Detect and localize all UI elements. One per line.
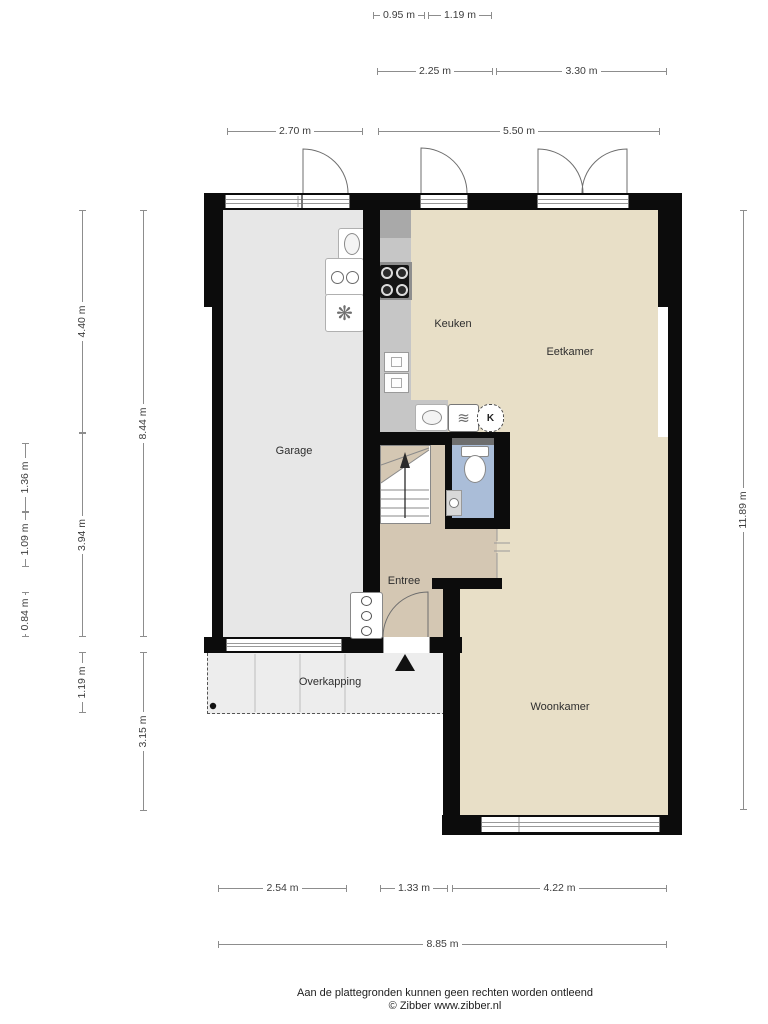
- wall-toilet-bottom: [445, 518, 510, 529]
- dimension-line-part: [601, 71, 666, 72]
- dimension-line-part: [79, 652, 86, 653]
- garage-top-window: [225, 195, 302, 208]
- toilet-sink-icon: [446, 490, 462, 516]
- dimension-line-part: [740, 809, 747, 810]
- dimension: 2.25 m: [377, 64, 493, 78]
- dimension-label: 1.33 m: [395, 881, 433, 895]
- toilet-bowl-icon: [464, 455, 486, 483]
- oven-icon: ≋: [448, 404, 479, 432]
- entree-label: Entree: [388, 575, 420, 587]
- wall-garage-kitchen: [363, 205, 380, 637]
- dimension-line-part: [79, 433, 86, 434]
- floorplan-page: ≋ K ❋: [0, 0, 768, 1024]
- dimension-label: 2.25 m: [416, 64, 454, 78]
- livingroom-window: [481, 817, 660, 832]
- meter-icon: [361, 611, 372, 621]
- dimension-line-part: [362, 128, 363, 135]
- dimension: 5.50 m: [378, 124, 660, 138]
- dimension: 8.44 m: [136, 210, 150, 637]
- dimension-line-part: [140, 810, 147, 811]
- burner-icon: [396, 284, 408, 296]
- dimension-line-part: [743, 532, 744, 809]
- dimension-line-part: [22, 443, 29, 444]
- dimension-label: 11.89 m: [736, 488, 750, 531]
- dimension: 2.70 m: [227, 124, 363, 138]
- kitchen-door-opening: [420, 195, 468, 208]
- dimension-line-part: [228, 131, 276, 132]
- dimension-line-part: [666, 68, 667, 75]
- dimension-line-part: [491, 12, 492, 19]
- dimension: 1.36 m: [18, 443, 32, 512]
- staircase: [380, 445, 431, 524]
- dimension-line-part: [79, 636, 86, 637]
- dimension-label: 8.44 m: [136, 404, 150, 442]
- dimension-line-part: [140, 652, 147, 653]
- dimension-label: 0.84 m: [18, 595, 32, 633]
- dimension-line-part: [666, 941, 667, 948]
- dimension-line-part: [666, 885, 667, 892]
- dimension: 3.15 m: [136, 652, 150, 811]
- dimension-line-part: [143, 751, 144, 810]
- washer-dryer-icon: [325, 258, 364, 296]
- dimension: 8.85 m: [218, 937, 667, 951]
- dimension-line-part: [424, 12, 425, 19]
- dimension-line-part: [82, 341, 83, 432]
- dimension-label: 1.09 m: [18, 520, 32, 558]
- dimension-line-part: [22, 566, 29, 567]
- dimension-line-part: [143, 211, 144, 404]
- dimension: 1.09 m: [18, 512, 32, 567]
- heatpump-fan-icon: ❋: [325, 294, 364, 332]
- dimension-line-part: [497, 71, 562, 72]
- wall-toilet-right: [494, 432, 510, 528]
- vestibule-floor: [373, 589, 445, 639]
- fridge-icon: [383, 351, 410, 394]
- dimension-line-part: [314, 131, 362, 132]
- dimension-label: 5.50 m: [500, 124, 538, 138]
- dimension-line-part: [25, 634, 26, 636]
- dimension-line-part: [25, 513, 26, 520]
- overkapping-label: Overkapping: [299, 676, 361, 688]
- toilet-shelf: [452, 438, 494, 445]
- dimension: 2.54 m: [218, 881, 347, 895]
- dimension-line-part: [140, 210, 147, 211]
- wall-left-lower: [212, 307, 223, 653]
- kitchen-counter: [380, 210, 411, 432]
- dimension-line-part: [453, 888, 540, 889]
- dimension-line-part: [538, 131, 659, 132]
- wall-livingroom-left: [443, 583, 460, 815]
- dimension-label: 3.94 m: [75, 516, 89, 554]
- dimension: 4.22 m: [452, 881, 667, 895]
- dimension-line-part: [79, 712, 86, 713]
- boiler-label: K: [487, 413, 494, 424]
- keuken-label: Keuken: [434, 318, 471, 330]
- dimension-line-part: [143, 653, 144, 712]
- woonkamer-label: Woonkamer: [530, 701, 589, 713]
- burner-icon: [396, 267, 408, 279]
- dimension-label: 8.85 m: [423, 937, 461, 951]
- dimension-label: 0.95 m: [380, 8, 418, 22]
- dimension-line-part: [25, 559, 26, 566]
- eetkamer-label: Eetkamer: [546, 346, 593, 358]
- boiler-icon: K: [477, 404, 504, 432]
- garage-bottom-window: [226, 639, 342, 651]
- garage-sink-icon: [338, 228, 366, 260]
- double-door-left-arc: [538, 149, 583, 193]
- dimension-line-part: [378, 71, 416, 72]
- footer: Aan de plattegronden kunnen geen rechten…: [61, 987, 768, 1013]
- garage-label: Garage: [276, 445, 313, 457]
- dimension-line-part: [82, 653, 83, 663]
- fan-glyph: ❋: [336, 301, 353, 326]
- dimension-line-part: [22, 592, 29, 593]
- dryer-drum-icon: [346, 271, 359, 284]
- dimension-label: 2.54 m: [263, 881, 301, 895]
- dimension-line-part: [25, 593, 26, 595]
- dimension-line-part: [82, 702, 83, 712]
- dimension: 1.19 m: [428, 8, 492, 22]
- dimension: 4.40 m: [75, 210, 89, 433]
- dimension-line-part: [143, 443, 144, 636]
- sink-basin: [344, 233, 360, 255]
- dimension-line-part: [140, 636, 147, 637]
- dimension-label: 1.19 m: [441, 8, 479, 22]
- dimension-line-part: [219, 888, 263, 889]
- dining-floor-strip: [497, 437, 668, 589]
- wall-toilet-left: [445, 445, 452, 529]
- oven-glyph: ≋: [457, 409, 470, 427]
- dimension-label: 1.19 m: [75, 663, 89, 701]
- dimension-line-part: [346, 885, 347, 892]
- meter-cupboard: [350, 592, 383, 639]
- burner-icon: [381, 284, 393, 296]
- meter-icon: [361, 626, 372, 636]
- dimension-line-part: [25, 444, 26, 458]
- garage-top-door-opening: [302, 195, 350, 208]
- dimension-line-part: [433, 888, 447, 889]
- dimension-label: 2.70 m: [276, 124, 314, 138]
- wall-right-lower: [668, 307, 682, 835]
- dimension-line-part: [302, 888, 346, 889]
- washer-drum-icon: [331, 271, 344, 284]
- stove-icon: [380, 265, 409, 298]
- fridge-cell: [384, 373, 409, 393]
- dimension-label: 1.36 m: [18, 458, 32, 496]
- meter-icon: [361, 596, 372, 606]
- dimension-label: 4.40 m: [75, 302, 89, 340]
- dimension: 1.33 m: [380, 881, 448, 895]
- dimension-line-part: [82, 211, 83, 302]
- dimension-line-part: [22, 636, 29, 637]
- dimension-label: 3.15 m: [136, 712, 150, 750]
- dimension-line-part: [492, 68, 493, 75]
- dimension-line-part: [740, 210, 747, 211]
- front-door-opening: [383, 637, 430, 653]
- dimension-line-part: [22, 512, 29, 513]
- footer-copyright: © Zibber www.zibber.nl: [61, 1000, 768, 1013]
- dimension: 3.94 m: [75, 433, 89, 637]
- dining-double-door-opening: [537, 195, 629, 208]
- kitchen-door-arc: [421, 148, 467, 193]
- dimension-line-part: [479, 15, 491, 16]
- dimension: 0.95 m: [373, 8, 425, 22]
- fridge-cell: [384, 352, 409, 372]
- dimension-line-part: [579, 888, 666, 889]
- wall-right-upper: [658, 193, 682, 307]
- dimension-line-part: [25, 497, 26, 511]
- dimension-line-part: [82, 434, 83, 516]
- kitchen-sink-icon: [415, 404, 448, 431]
- dimension-line-part: [447, 885, 448, 892]
- burner-icon: [381, 267, 393, 279]
- dimension-line-part: [454, 71, 492, 72]
- wall-left-upper: [204, 193, 223, 307]
- dimension-label: 4.22 m: [540, 881, 578, 895]
- dimension: 1.19 m: [75, 652, 89, 713]
- dimension-line-part: [659, 128, 660, 135]
- dimension: 11.89 m: [736, 210, 750, 810]
- dimension-line-part: [429, 15, 441, 16]
- sink-basin: [422, 410, 442, 425]
- footer-disclaimer: Aan de plattegronden kunnen geen rechten…: [61, 987, 768, 1000]
- double-door-right-arc: [582, 149, 627, 193]
- dimension-line-part: [219, 944, 423, 945]
- dimension-line-part: [381, 888, 395, 889]
- dimension-line-part: [82, 554, 83, 636]
- sink-basin: [449, 498, 459, 508]
- dimension-line-part: [379, 131, 500, 132]
- dimension-line-part: [462, 944, 666, 945]
- garage-door-arc: [303, 149, 348, 193]
- kitchen-counter-top-section: [380, 210, 411, 238]
- dimension: 3.30 m: [496, 64, 667, 78]
- dimension-line-part: [79, 210, 86, 211]
- dimension-label: 3.30 m: [562, 64, 600, 78]
- dimension-line-part: [743, 211, 744, 488]
- dimension: 0.84 m: [18, 592, 32, 637]
